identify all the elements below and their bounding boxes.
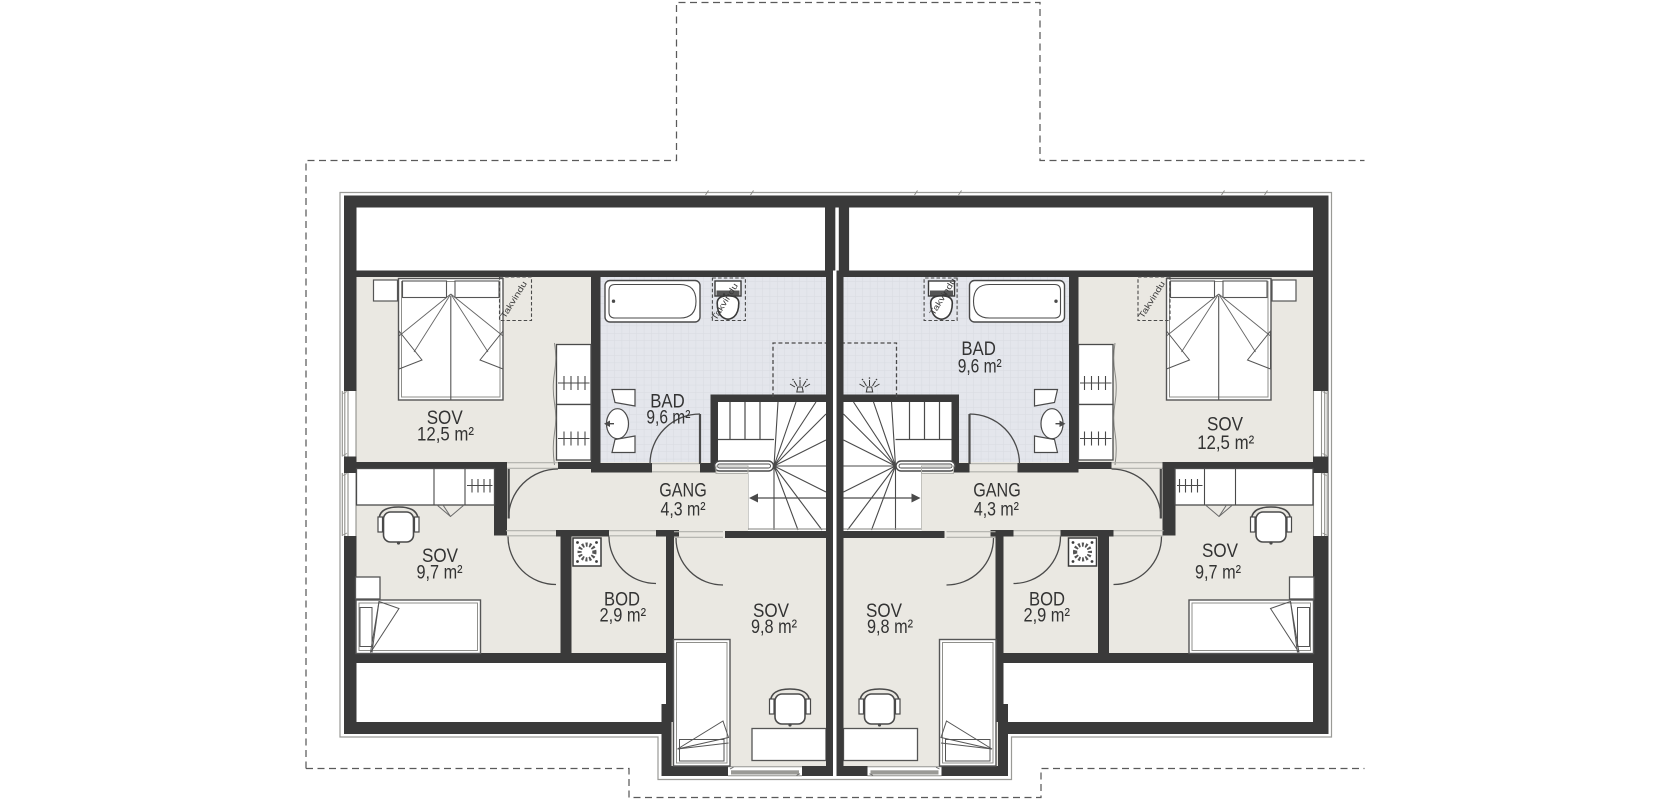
svg-text:9,7 m²: 9,7 m² [417, 562, 463, 584]
svg-text:2,9 m²: 2,9 m² [1023, 605, 1070, 627]
svg-text:12,5 m²: 12,5 m² [1197, 432, 1254, 454]
svg-text:4,3 m²: 4,3 m² [974, 498, 1019, 520]
svg-text:9,8 m²: 9,8 m² [867, 616, 913, 638]
svg-text:9,6 m²: 9,6 m² [646, 407, 690, 429]
svg-text:2,9 m²: 2,9 m² [600, 605, 647, 627]
svg-text:9,6 m²: 9,6 m² [958, 356, 1002, 378]
svg-text:4,3 m²: 4,3 m² [661, 498, 706, 520]
svg-text:9,8 m²: 9,8 m² [751, 616, 797, 638]
svg-text:12,5 m²: 12,5 m² [417, 423, 474, 445]
svg-text:9,7 m²: 9,7 m² [1195, 562, 1241, 584]
svg-text:SOV: SOV [1202, 540, 1238, 562]
